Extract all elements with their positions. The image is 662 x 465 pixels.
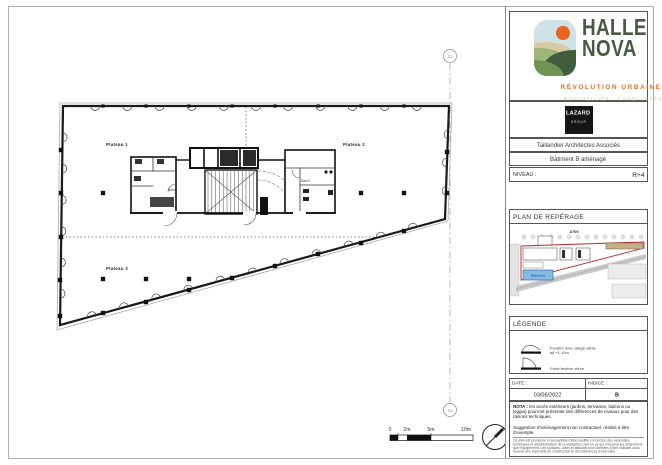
- date-label: DATE :: [512, 381, 527, 386]
- reperage-panel: PLAN DE REPÉRAGE A709 Bâtiment B: [509, 209, 648, 305]
- legend-item-window: Fenêtre avec allège vitrée alt +1.10m: [520, 337, 642, 355]
- nota-box: NOTA : les accès extérieurs (jardins, te…: [509, 401, 648, 457]
- scale-bar: 0 2m 5m 10m: [389, 427, 473, 441]
- scale-tick-0: 0: [389, 427, 392, 433]
- elevator-bank: [190, 148, 258, 168]
- legende-header: LÉGENDE: [510, 317, 647, 331]
- highway-label: A709: [569, 230, 578, 234]
- wc-fixture: [303, 197, 309, 201]
- site-building: [560, 248, 572, 260]
- plateau-1-label: Plateau 1: [106, 142, 128, 147]
- legend-door-label: Porte fenêtre vitrée: [550, 367, 584, 372]
- niveau-row: NIVEAU : R+4: [509, 167, 648, 182]
- indice-value-cell: B: [586, 389, 647, 401]
- legend-window-label: Fenêtre avec allège vitrée alt +1.10m: [550, 346, 596, 355]
- legende-title: LÉGENDE: [513, 320, 546, 328]
- project-name: Bâtiment B aménagé: [550, 156, 606, 163]
- grid-axis-11: 11 11: [444, 50, 457, 417]
- san-f-label: San.F: [168, 188, 177, 192]
- date-value-cell: 03/06/2022: [510, 389, 586, 401]
- project-row: Bâtiment B aménagé: [509, 152, 648, 166]
- duct: [328, 190, 333, 195]
- sanitary-block-left: [131, 157, 176, 213]
- reperage-title: PLAN DE REPÉRAGE: [513, 213, 584, 221]
- plateau-3-label: Plateau 3: [106, 266, 128, 271]
- scale-tick-2m: 2m: [403, 427, 410, 433]
- north-arrow-icon: [483, 425, 506, 450]
- site-building: [523, 262, 543, 268]
- architect-row: Taillandier Architectes Associés: [509, 138, 648, 152]
- landscape-logo-icon: [534, 20, 576, 76]
- grid-marker-bottom-label: 11: [448, 408, 453, 413]
- indice-value: B: [615, 392, 619, 398]
- stamp-table: DATE : INDICE : 03/06/2022 B: [509, 378, 648, 401]
- brand-wordmark: HALLE NOVA: [582, 17, 647, 59]
- grid-marker-top-label: 11: [448, 54, 453, 59]
- brand-line-2: NOVA: [582, 38, 647, 59]
- titleblock-divider-line: [505, 6, 506, 458]
- legende-panel: LÉGENDE Fenêtre avec allège vitrée alt +…: [509, 316, 648, 374]
- site-strip: [606, 243, 643, 249]
- plateau-2-label: Plateau 2: [343, 142, 365, 147]
- nota-fine-print: Ce plan est provisoire et susceptible d'…: [513, 439, 644, 453]
- city-block: [612, 284, 646, 298]
- sun-icon: [556, 26, 570, 40]
- lazard-name: LAZARD: [566, 110, 590, 116]
- site-building: [523, 248, 557, 260]
- nota-text: NOTA : les accès extérieurs (jardins, te…: [513, 404, 644, 419]
- architectural-sheet: { "sheet": { "plan": { "plateau1": "Plat…: [0, 0, 662, 465]
- brand-logo-panel: HALLE NOVA RÉVOLUTION URBAINE MONTPELLIE…: [509, 11, 648, 101]
- architect-name: Taillandier Architectes Associés: [537, 142, 620, 149]
- building-outline: [60, 106, 449, 325]
- city-block: [608, 264, 646, 279]
- sanitary-block-right: [285, 150, 335, 213]
- lazard-logo: LAZARD GROUP: [565, 106, 593, 134]
- indice-label: INDICE :: [588, 381, 607, 386]
- floor-plan-drawing: 11 11: [0, 0, 505, 465]
- stairs: [205, 170, 257, 214]
- date-header-cell: DATE :: [510, 379, 586, 389]
- basin-fixture: [324, 170, 327, 173]
- door-swing-symbol: [520, 355, 544, 371]
- wc-fixture: [135, 159, 142, 164]
- legend-item-door: Porte fenêtre vitrée: [520, 355, 618, 371]
- site-building: [538, 236, 552, 246]
- basin-fixture: [329, 170, 332, 173]
- lazard-sub: GROUP: [571, 120, 587, 124]
- wc-fixture: [134, 176, 141, 181]
- lazard-logo-row: LAZARD GROUP: [509, 101, 648, 138]
- niveau-value: R+4: [632, 171, 644, 178]
- scale-tick-10m: 10m: [461, 427, 471, 433]
- scale-tick-5m: 5m: [427, 427, 434, 433]
- wc-fixture: [303, 189, 309, 193]
- window-sill-symbol: [520, 341, 544, 355]
- san-h-label: San.H: [301, 179, 311, 183]
- wc-fixture: [157, 159, 164, 164]
- date-value: 03/06/2022: [534, 392, 562, 398]
- site-location-map: A709 Bâtiment B: [510, 224, 647, 304]
- reperage-header: PLAN DE REPÉRAGE: [510, 210, 647, 224]
- batiment-b-label: Bâtiment B: [531, 274, 545, 278]
- nota-suggestion-text: Suggestion d'aménagement non contractuel…: [513, 425, 644, 435]
- counter: [150, 197, 174, 207]
- indice-header-cell: INDICE :: [586, 379, 647, 389]
- niveau-label: NIVEAU :: [513, 171, 537, 177]
